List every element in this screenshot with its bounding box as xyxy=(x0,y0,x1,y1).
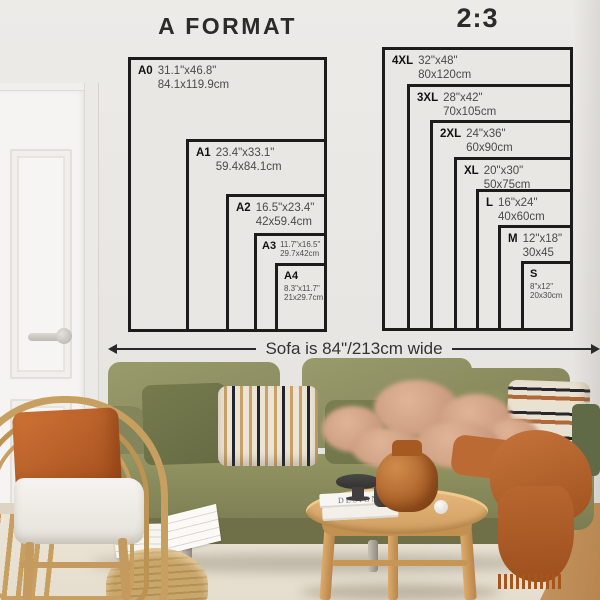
door-panel-upper xyxy=(10,149,72,379)
sofa-width-dimension: Sofa is 84"/213cm wide xyxy=(110,339,598,359)
amber-glass-vase xyxy=(376,450,438,512)
size-inches: 16.5"x23.4" xyxy=(256,202,315,216)
amber-vase-neck xyxy=(392,440,422,456)
size-cm: 42x59.4cm xyxy=(256,216,315,230)
size-cm: 40x60cm xyxy=(498,211,545,225)
size-inches: 16"x24" xyxy=(498,197,545,211)
size-cm: 21x29.7cm xyxy=(284,293,324,302)
magazine-page-right xyxy=(161,504,221,554)
decor-sphere xyxy=(434,500,448,514)
size-label-s: S 8"x12"20x30cm xyxy=(524,264,570,301)
size-label-xl: XL 20"x30"50x75cm xyxy=(457,160,570,192)
size-label-l: L 16"x24"40x60cm xyxy=(479,192,570,224)
size-label-4xl: 4XL 32"x48"80x120cm xyxy=(385,50,570,82)
size-label-a4: A4 8.3"x11.7"21x29.7cm xyxy=(278,266,324,303)
size-box-l: L 16"x24"40x60cm M 12"x18"30x45 S xyxy=(476,189,573,331)
left-arrow-icon xyxy=(110,348,256,350)
size-box-a0: A0 31.1"x46.8"84.1x119.9cm A1 23.4"x33.1… xyxy=(128,57,327,332)
size-box-3xl: 3XL 28"x42"70x105cm 2XL 24"x36"60x90cm X… xyxy=(407,84,573,331)
size-box-2xl: 2XL 24"x36"60x90cm XL 20"x30"50x75cm L 1… xyxy=(430,120,573,331)
sofa-leg xyxy=(368,540,378,572)
size-code: 4XL xyxy=(392,55,413,82)
size-inches: 24"x36" xyxy=(466,128,513,142)
size-inches: 8"x12" xyxy=(530,282,570,291)
size-cm: 70x105cm xyxy=(443,106,496,120)
pedestal-bowl-foot xyxy=(346,496,370,501)
size-code: S xyxy=(530,268,570,281)
throw-blanket-fringe xyxy=(498,574,564,589)
door-handle-rosette xyxy=(56,328,72,344)
right-arrow-icon xyxy=(452,348,598,350)
size-code: 3XL xyxy=(417,92,438,119)
size-cm: 80x120cm xyxy=(418,69,471,83)
size-inches: 8.3"x11.7" xyxy=(284,284,324,293)
size-inches: 31.1"x46.8" xyxy=(158,65,229,79)
size-code: M xyxy=(508,233,518,260)
size-box-a2: A2 16.5"x23.4"42x59.4cm A3 11.7"x16.5"29… xyxy=(226,194,327,332)
chair-cushion-white xyxy=(14,478,144,544)
size-code: A3 xyxy=(262,240,276,259)
size-label-a3: A3 11.7"x16.5"29.7x42cm xyxy=(257,236,324,259)
size-box-4xl: 4XL 32"x48"80x120cm 3XL 28"x42"70x105cm … xyxy=(382,47,573,331)
sofa-width-label: Sofa is 84"/213cm wide xyxy=(265,339,442,359)
size-code: L xyxy=(486,197,493,224)
size-inches: 11.7"x16.5" xyxy=(280,240,320,249)
size-label-a1: A1 23.4"x33.1"59.4x84.1cm xyxy=(189,142,324,174)
living-room-size-guide: A FORMAT 2:3 A0 31.1"x46.8"84.1x119.9cm … xyxy=(0,0,600,600)
size-cm: 84.1x119.9cm xyxy=(158,79,229,93)
size-code: A4 xyxy=(284,270,324,283)
size-label-a0: A0 31.1"x46.8"84.1x119.9cm xyxy=(131,60,324,92)
table-leg xyxy=(388,532,398,600)
size-box-a4: A4 8.3"x11.7"21x29.7cm xyxy=(275,263,327,332)
size-box-a3: A3 11.7"x16.5"29.7x42cm A4 8.3"x11.7"21x… xyxy=(254,233,327,332)
size-inches: 32"x48" xyxy=(418,55,471,69)
size-box-xl: XL 20"x30"50x75cm L 16"x24"40x60cm M 12"… xyxy=(454,157,573,331)
size-cm: 30x45 xyxy=(523,247,563,261)
size-label-m: M 12"x18"30x45 xyxy=(501,228,570,260)
size-code: 2XL xyxy=(440,128,461,155)
size-label-3xl: 3XL 28"x42"70x105cm xyxy=(410,87,570,119)
size-inches: 20"x30" xyxy=(484,165,531,179)
size-inches: 23.4"x33.1" xyxy=(216,147,282,161)
size-box-m: M 12"x18"30x45 S 8"x12"20x30cm xyxy=(498,225,573,331)
size-code: A0 xyxy=(138,65,153,92)
size-cm: 60x90cm xyxy=(466,142,513,156)
table-rail xyxy=(332,560,468,566)
size-box-a1: A1 23.4"x33.1"59.4x84.1cm A2 16.5"x23.4"… xyxy=(186,139,327,332)
size-box-s: S 8"x12"20x30cm xyxy=(521,261,573,331)
size-cm: 29.7x42cm xyxy=(280,249,320,258)
size-code: A2 xyxy=(236,202,251,229)
size-cm: 20x30cm xyxy=(530,291,570,300)
chair-rail xyxy=(20,562,132,568)
size-code: A1 xyxy=(196,147,211,174)
size-cm: 59.4x84.1cm xyxy=(216,161,282,175)
size-label-2xl: 2XL 24"x36"60x90cm xyxy=(433,123,570,155)
size-label-a2: A2 16.5"x23.4"42x59.4cm xyxy=(229,197,324,229)
size-inches: 12"x18" xyxy=(523,233,563,247)
chart-title-2-3: 2:3 xyxy=(382,3,573,34)
pillow-striped-center xyxy=(218,386,318,466)
size-inches: 28"x42" xyxy=(443,92,496,106)
chart-title-a-format: A FORMAT xyxy=(128,13,327,40)
throw-blanket-drape xyxy=(498,486,574,582)
